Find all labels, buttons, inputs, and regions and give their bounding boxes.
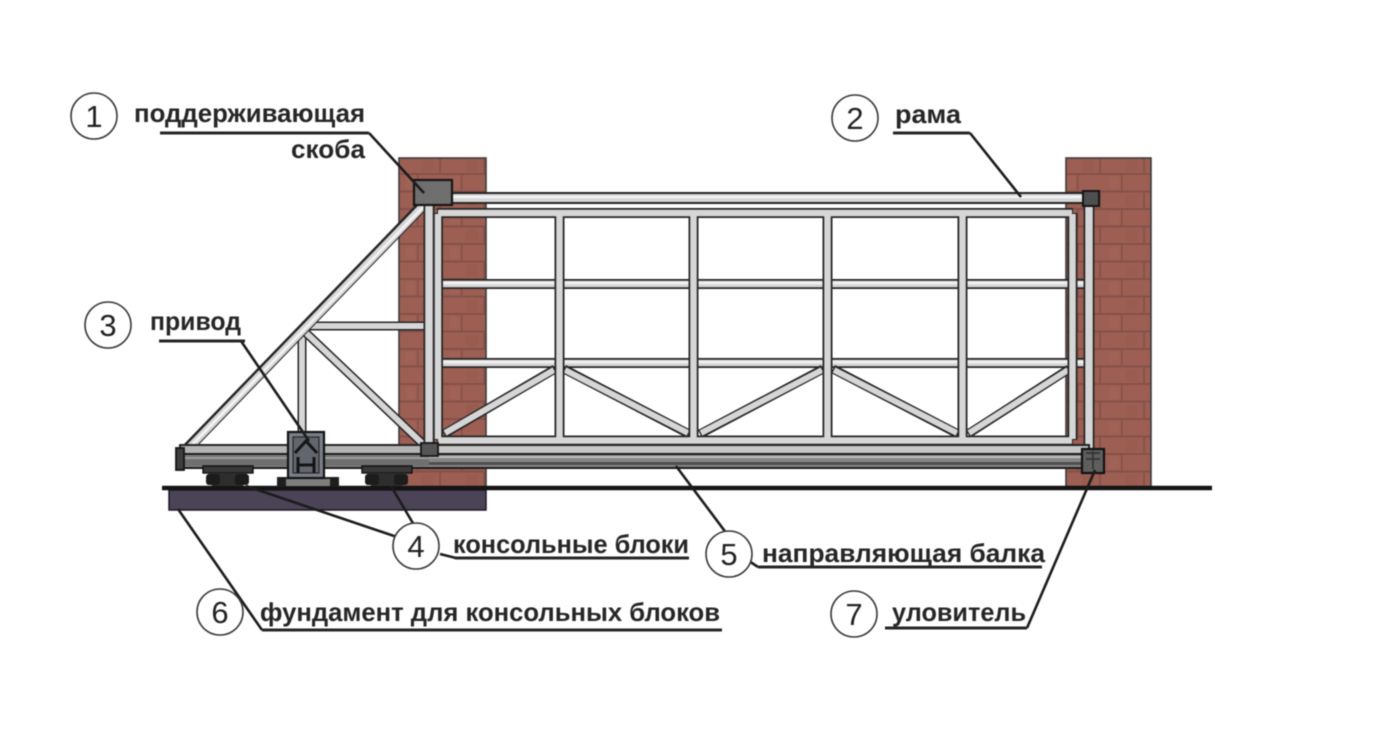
- svg-text:привод: привод: [150, 306, 241, 336]
- svg-text:7: 7: [845, 597, 862, 632]
- svg-text:рама: рама: [895, 99, 962, 129]
- svg-text:направляющая балка: направляющая балка: [762, 538, 1046, 568]
- svg-text:1: 1: [85, 99, 102, 134]
- svg-text:2: 2: [846, 101, 863, 136]
- svg-text:фундамент для консольных блоко: фундамент для консольных блоков: [260, 597, 720, 627]
- svg-text:консольные блоки: консольные блоки: [453, 529, 689, 559]
- svg-text:уловитель: уловитель: [892, 597, 1026, 627]
- svg-text:скоба: скоба: [291, 134, 366, 164]
- svg-text:6: 6: [211, 595, 228, 630]
- svg-text:поддерживающая: поддерживающая: [134, 98, 365, 128]
- svg-text:4: 4: [407, 529, 424, 564]
- svg-text:5: 5: [720, 537, 737, 572]
- svg-text:3: 3: [99, 308, 116, 343]
